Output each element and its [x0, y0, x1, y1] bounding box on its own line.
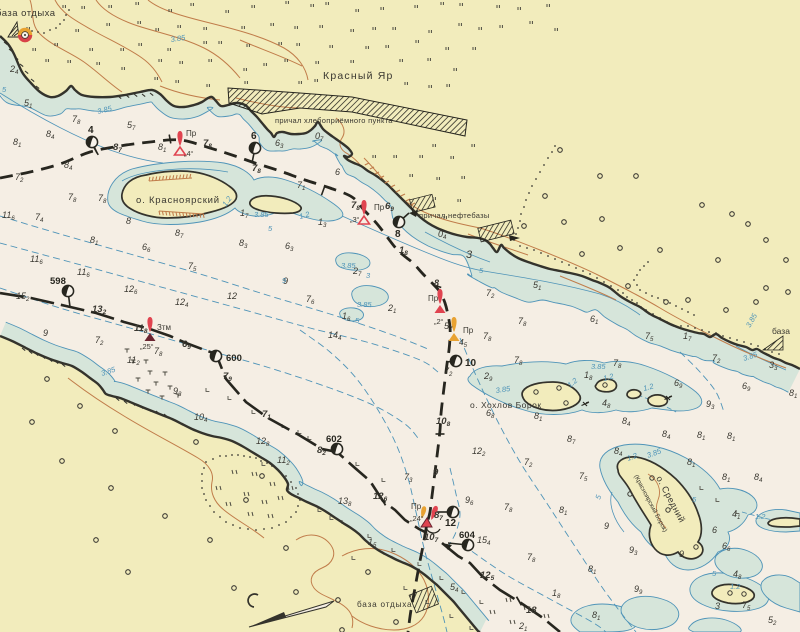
svg-text:604: 604 [459, 530, 476, 541]
svg-text:Пр: Пр [411, 502, 422, 511]
svg-text:6: 6 [335, 167, 340, 177]
svg-text:12: 12 [227, 291, 237, 301]
svg-text:6: 6 [712, 525, 717, 535]
svg-text:9: 9 [604, 521, 609, 531]
svg-text:о. Красноярский: о. Красноярский [136, 195, 220, 206]
svg-text:18: 18 [526, 605, 537, 616]
svg-text:3: 3 [715, 601, 720, 611]
svg-text:9: 9 [433, 467, 439, 478]
svg-text:3.85: 3.85 [357, 300, 372, 309]
svg-text:600: 600 [226, 353, 242, 364]
svg-text:база: база [772, 326, 790, 336]
svg-text:9: 9 [43, 328, 48, 338]
svg-text:8: 8 [434, 278, 439, 288]
svg-text:Зтм: Зтм [157, 323, 171, 332]
svg-text:3: 3 [466, 249, 473, 261]
svg-text:4: 4 [88, 125, 94, 136]
svg-text:„3“: „3“ [350, 215, 360, 224]
svg-text:1.2: 1.2 [730, 582, 741, 591]
svg-text:6: 6 [251, 131, 257, 142]
svg-text:1.2: 1.2 [755, 512, 766, 521]
svg-text:причал хлебоприёмного пункта: причал хлебоприёмного пункта [275, 116, 393, 125]
svg-text:8: 8 [395, 229, 401, 240]
svg-text:„25“: „25“ [140, 342, 154, 351]
svg-text:12: 12 [445, 518, 457, 529]
svg-text:Пр: Пр [463, 326, 474, 335]
svg-text:Пр: Пр [374, 203, 385, 212]
svg-text:Пр: Пр [428, 294, 439, 303]
svg-text:3.85: 3.85 [591, 362, 606, 371]
svg-text:о. Хохлов Борок: о. Хохлов Борок [470, 400, 542, 410]
svg-text:„2“: „2“ [434, 317, 444, 326]
svg-text:причал нефтебазы: причал нефтебазы [419, 211, 490, 220]
svg-text:3.85: 3.85 [341, 261, 356, 270]
svg-text:9: 9 [679, 549, 684, 559]
svg-text:база отдыха: база отдыха [357, 600, 412, 609]
svg-text:602: 602 [326, 434, 342, 445]
svg-text:8: 8 [126, 216, 131, 226]
svg-text:„4“: „4“ [184, 149, 194, 158]
svg-text:598: 598 [50, 276, 66, 287]
svg-text:база отдыха: база отдыха [0, 8, 56, 19]
svg-text:„24“: „24“ [410, 514, 424, 523]
svg-text:10: 10 [465, 358, 477, 369]
svg-text:3.85: 3.85 [254, 210, 269, 219]
svg-text:Пр: Пр [186, 129, 197, 138]
svg-text:Красный Яр: Красный Яр [323, 70, 394, 82]
